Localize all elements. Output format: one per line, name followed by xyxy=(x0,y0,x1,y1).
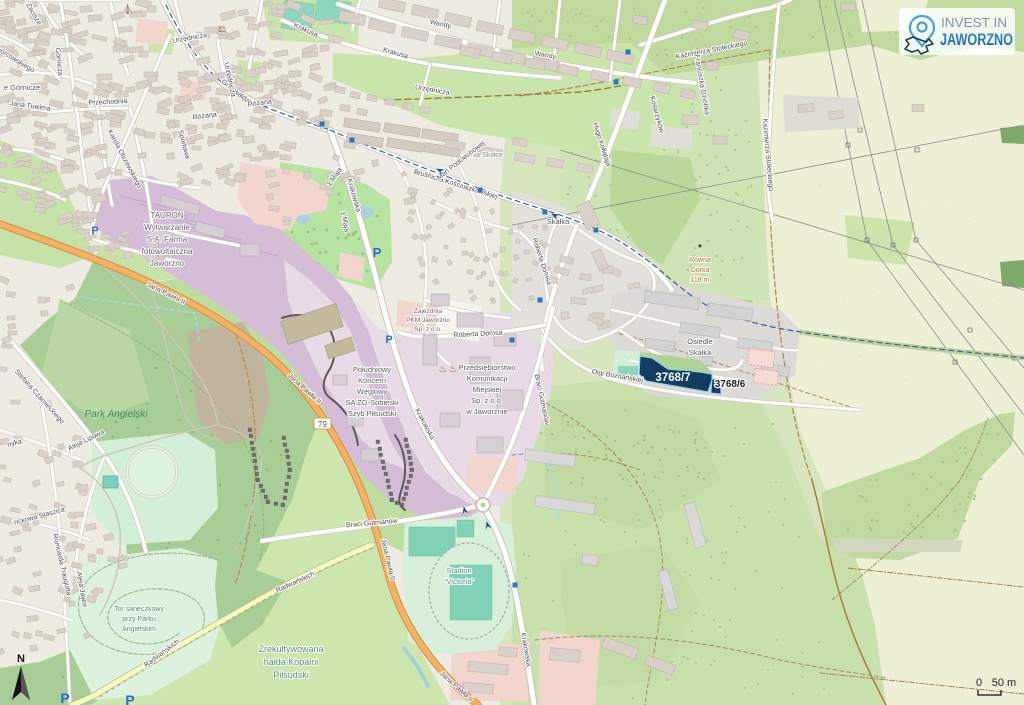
svg-text:Angielskim: Angielskim xyxy=(122,626,156,633)
svg-text:Piłsudski: Piłsudski xyxy=(273,670,309,680)
svg-text:Równa: Równa xyxy=(689,257,711,264)
svg-text:Sp. z o.o.: Sp. z o.o. xyxy=(414,326,442,333)
svg-text:118 m: 118 m xyxy=(691,277,710,284)
svg-text:Jaworzno: Jaworzno xyxy=(150,259,185,268)
svg-text:Park Angielski: Park Angielski xyxy=(85,409,149,420)
svg-text:Skałka: Skałka xyxy=(689,348,712,357)
svg-text:P: P xyxy=(125,692,134,705)
svg-text:♨: ♨ xyxy=(449,364,458,375)
svg-text:TAURON: TAURON xyxy=(150,211,183,220)
svg-text:Południowy: Południowy xyxy=(353,365,392,374)
svg-text:Szyb Piłsudski: Szyb Piłsudski xyxy=(348,409,397,418)
svg-text:P: P xyxy=(373,245,382,260)
svg-text:Miejskiej: Miejskiej xyxy=(473,385,502,394)
svg-text:PKM Jaworzno: PKM Jaworzno xyxy=(406,317,450,324)
svg-text:przy Parku: przy Parku xyxy=(122,616,156,623)
svg-text:fotowoltaiczna: fotowoltaiczna xyxy=(142,247,193,256)
svg-text:Sp. z o.o.: Sp. z o.o. xyxy=(471,396,503,405)
svg-text:Tor saneczkowy: Tor saneczkowy xyxy=(114,606,164,613)
svg-text:INVEST IN: INVEST IN xyxy=(941,15,1007,30)
svg-text:SA ZG-Sobieski: SA ZG-Sobieski xyxy=(346,398,399,407)
svg-text:w Jaworznie: w Jaworznie xyxy=(465,407,507,416)
svg-text:Osiedle: Osiedle xyxy=(687,337,712,346)
svg-text:Skałka: Skałka xyxy=(547,217,570,226)
svg-text:Zajezdnia: Zajezdnia xyxy=(414,308,443,315)
svg-text:Węglowy: Węglowy xyxy=(357,387,388,396)
svg-text:S.A. Farma: S.A. Farma xyxy=(147,235,188,244)
svg-text:P: P xyxy=(60,690,69,705)
svg-text:⛪: ⛪ xyxy=(122,3,133,14)
svg-text:♨: ♨ xyxy=(439,364,448,375)
svg-text:N: N xyxy=(17,653,25,665)
svg-text:50 m: 50 m xyxy=(992,677,1016,689)
svg-text:79: 79 xyxy=(318,420,327,429)
svg-text:Komunikacji: Komunikacji xyxy=(467,374,508,383)
svg-text:Wytwarzanie: Wytwarzanie xyxy=(144,223,190,232)
svg-text:Przedsiębiorstwo: Przedsiębiorstwo xyxy=(458,363,515,372)
svg-text:P: P xyxy=(91,225,98,237)
svg-text:e Górnicze: e Górnicze xyxy=(4,83,40,92)
svg-text:3768/6: 3768/6 xyxy=(715,379,746,390)
svg-text:P: P xyxy=(385,334,392,346)
svg-text:Górka: Górka xyxy=(690,267,709,274)
svg-text:Koncern: Koncern xyxy=(358,376,386,385)
svg-text:“Victoria”: “Victoria” xyxy=(444,577,474,586)
svg-text:JAWORZNO: JAWORZNO xyxy=(940,31,1013,49)
svg-text:3768/7: 3768/7 xyxy=(655,372,690,384)
svg-text:hałda Kopalni: hałda Kopalni xyxy=(264,657,319,667)
svg-text:⚖: ⚖ xyxy=(218,24,226,34)
svg-text:Zrekultywowana: Zrekultywowana xyxy=(258,644,323,654)
svg-text:0: 0 xyxy=(976,677,982,689)
svg-text:Stadion: Stadion xyxy=(446,566,471,575)
